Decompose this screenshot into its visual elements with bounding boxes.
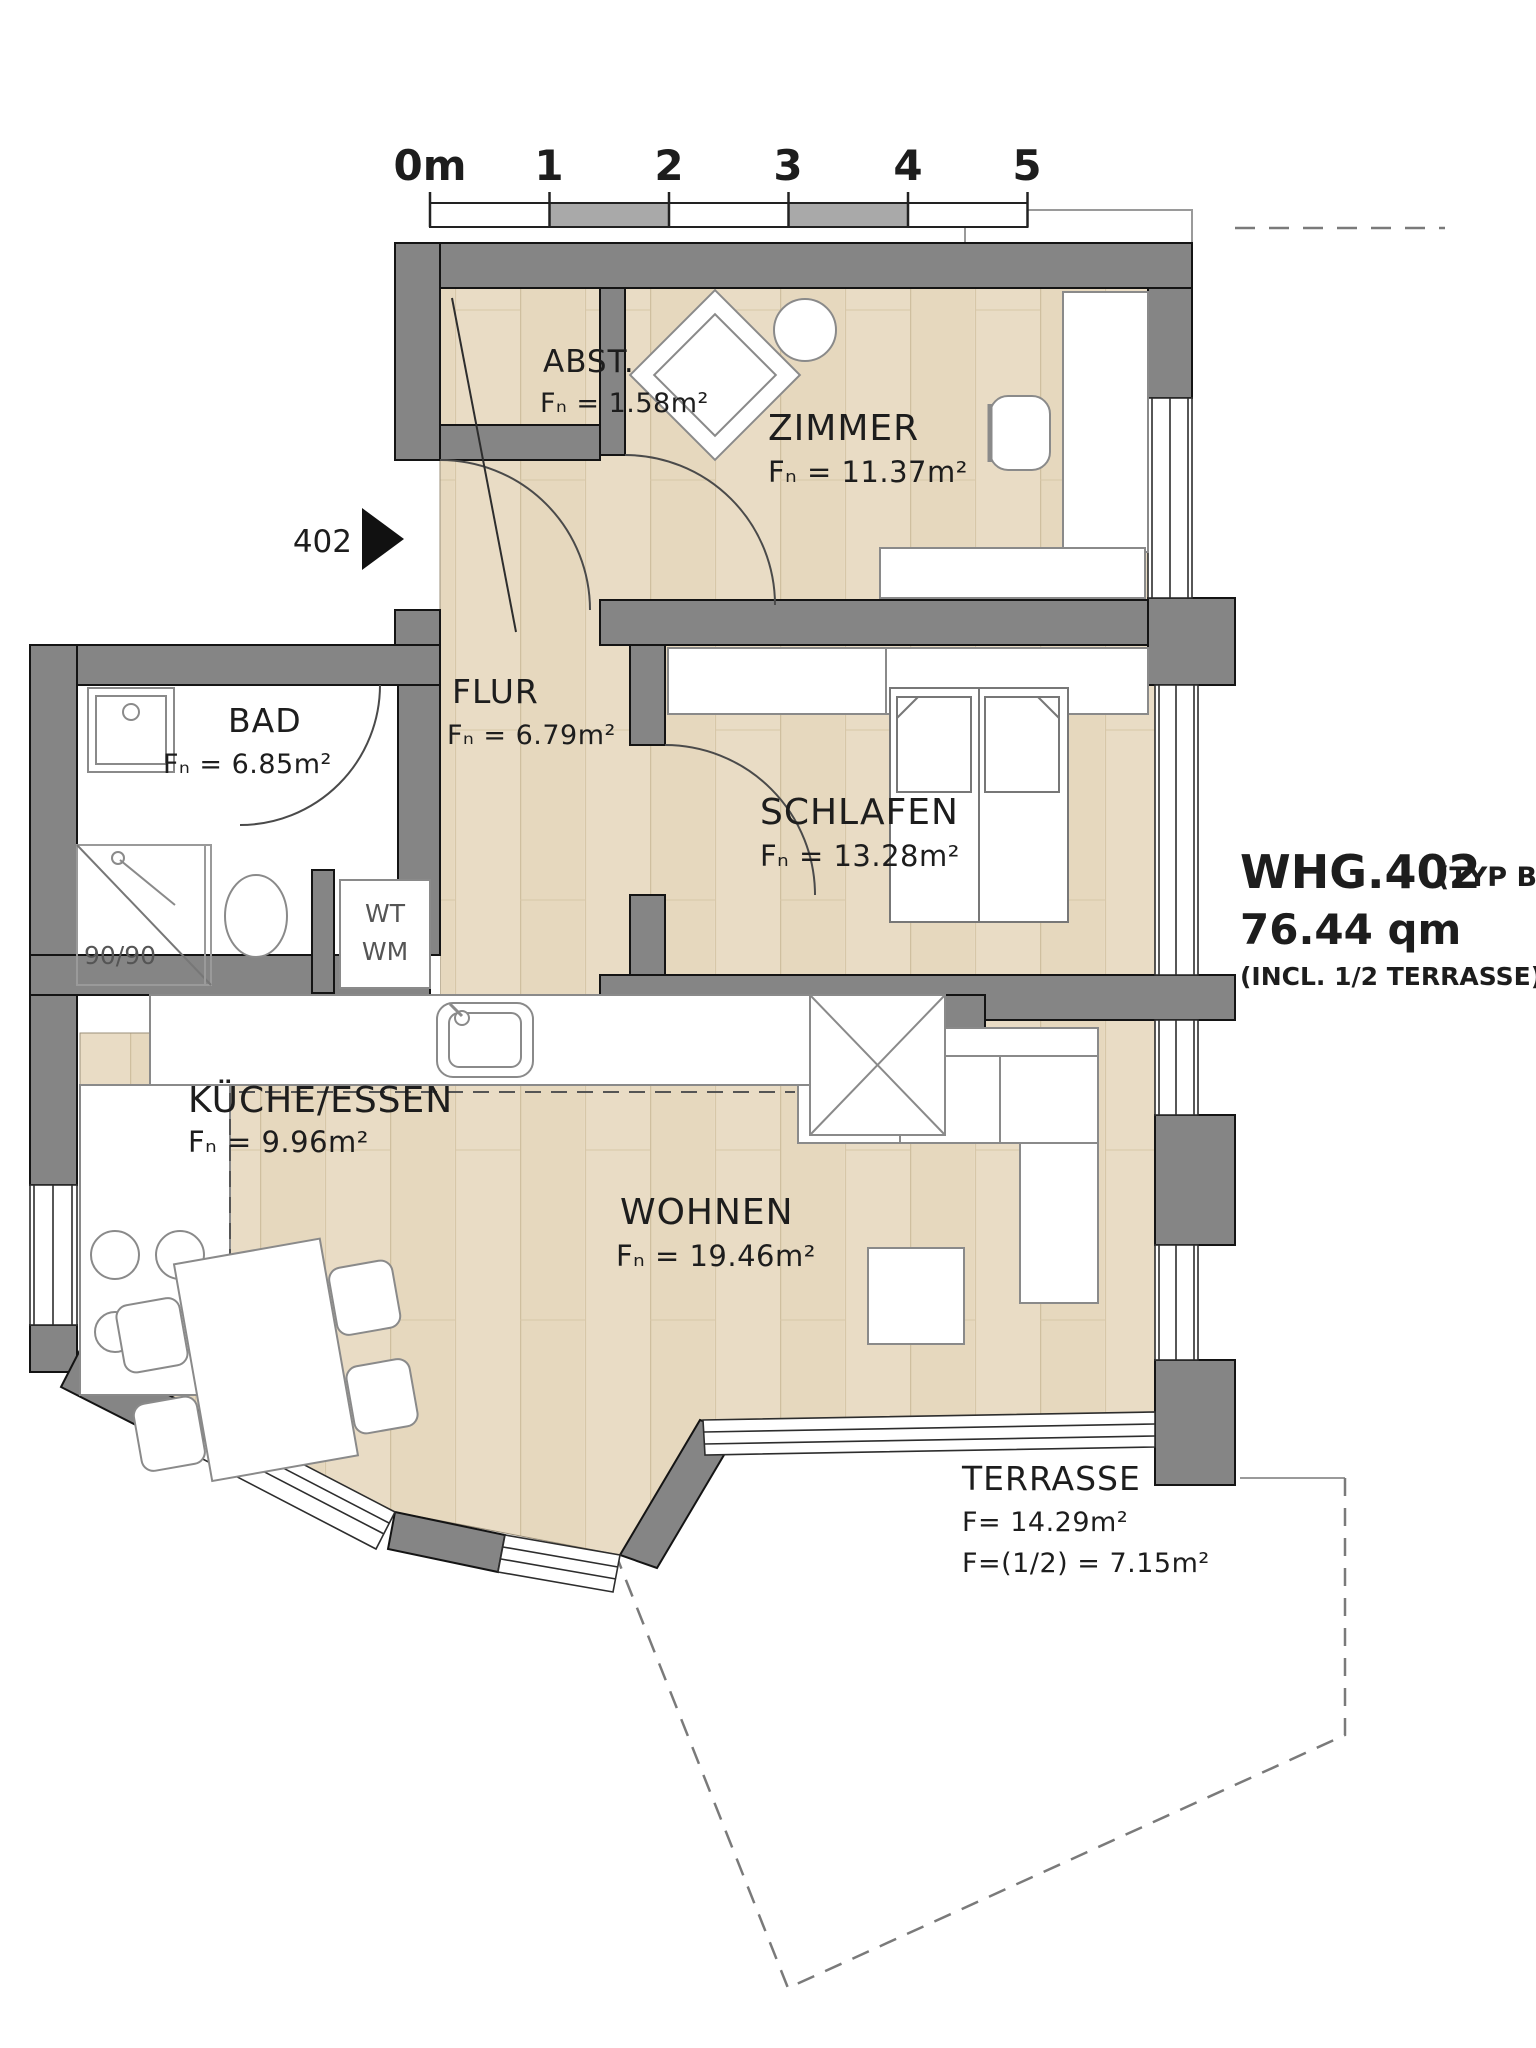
wall-zimmer-bottom: [600, 600, 1192, 645]
unit-marker: 402: [293, 508, 404, 570]
scale-label-3: 3: [773, 141, 802, 190]
scale-label-0: 0m: [394, 141, 467, 190]
unit-note: (INCL. 1/2 TERRASSE): [1240, 962, 1536, 991]
neighbour-slab-outline: [965, 210, 1445, 243]
floor-plan-page: 0m 1 2 3 4 5 402 ABST. Fₙ = 1.58m² ZIMME…: [0, 0, 1536, 2048]
scale-label-5: 5: [1012, 141, 1041, 190]
shower-size-label: 90/90: [84, 941, 156, 970]
label-terrasse: TERRASSE: [961, 1459, 1141, 1498]
sideboard-icon: [880, 548, 1145, 598]
coffee-table-icon: [868, 1248, 964, 1344]
wall-bad-top: [30, 645, 440, 685]
wall-east-pier-top: [1148, 288, 1192, 398]
wall-left-upper: [395, 243, 440, 460]
wm-label: WM: [362, 937, 408, 966]
wall-kitchen-left-b: [30, 1325, 77, 1372]
area-flur: Fₙ = 6.79m²: [447, 720, 616, 751]
desk-icon: [1063, 292, 1148, 552]
scale-label-1: 1: [534, 141, 563, 190]
title-block: WHG.402 (TYP B) 76.44 qm (INCL. 1/2 TERR…: [1240, 845, 1536, 991]
area-terrasse: F= 14.29m²: [962, 1507, 1128, 1538]
scale-label-4: 4: [893, 141, 922, 190]
wall-east-pier-low: [1155, 1360, 1235, 1485]
window-wohnen-east-a: [1155, 1020, 1198, 1115]
wall-wc-stub: [312, 870, 334, 993]
area-half-terrasse: F=(1/2) = 7.15m²: [962, 1548, 1210, 1579]
window-kitchen-west: [30, 1185, 77, 1325]
unit-type: (TYP B): [1437, 862, 1536, 893]
side-table-icon: [774, 299, 836, 361]
washbasin-icon: [88, 688, 174, 772]
window-wohnen-south: [703, 1412, 1155, 1455]
window-wohnen-east-b: [1155, 1245, 1198, 1360]
label-abst: ABST.: [543, 344, 635, 380]
shaft-box-icon: [810, 995, 945, 1135]
area-wohnen: Fₙ = 19.46m²: [616, 1239, 816, 1273]
wall-schlafen-left-a: [630, 645, 665, 745]
wall-schlafen-left-b: [630, 895, 665, 975]
label-bad: BAD: [228, 701, 302, 740]
wt-label: WT: [365, 899, 406, 928]
wall-top: [395, 243, 1192, 288]
floor-plan-drawing: 0m 1 2 3 4 5 402 ABST. Fₙ = 1.58m² ZIMME…: [0, 0, 1536, 2048]
wall-east-corner-block: [1148, 598, 1235, 685]
wall-east-pier-mid: [1155, 1115, 1235, 1245]
area-kueche: Fₙ = 9.96m²: [188, 1125, 369, 1159]
unit-area: 76.44 qm: [1240, 905, 1461, 954]
washer-dryer-box-icon: [340, 880, 430, 988]
desk-chair-icon: [990, 396, 1050, 470]
label-schlafen: SCHLAFEN: [760, 792, 959, 833]
label-kueche: KÜCHE/ESSEN: [188, 1079, 453, 1121]
unit-number: 402: [293, 524, 352, 560]
wall-abst-bottom: [440, 425, 600, 460]
label-flur: FLUR: [452, 672, 539, 711]
area-zimmer: Fₙ = 11.37m²: [768, 455, 968, 489]
window-schlafen-east: [1155, 685, 1198, 975]
area-schlafen: Fₙ = 13.28m²: [760, 839, 960, 873]
window-zimmer-east: [1148, 398, 1192, 598]
scale-label-2: 2: [654, 141, 683, 190]
toilet-icon: [225, 875, 287, 957]
area-abst: Fₙ = 1.58m²: [540, 388, 709, 419]
entrance-arrow-icon: [362, 508, 404, 570]
kitchen-sink-icon: [437, 1003, 533, 1077]
label-wohnen: WOHNEN: [620, 1192, 794, 1233]
scale-bar: 0m 1 2 3 4 5: [394, 141, 1042, 227]
wall-bad-left: [30, 645, 77, 955]
label-zimmer: ZIMMER: [768, 408, 919, 449]
area-bad: Fₙ = 6.85m²: [163, 749, 332, 780]
wall-kitchen-left-a: [30, 995, 77, 1185]
